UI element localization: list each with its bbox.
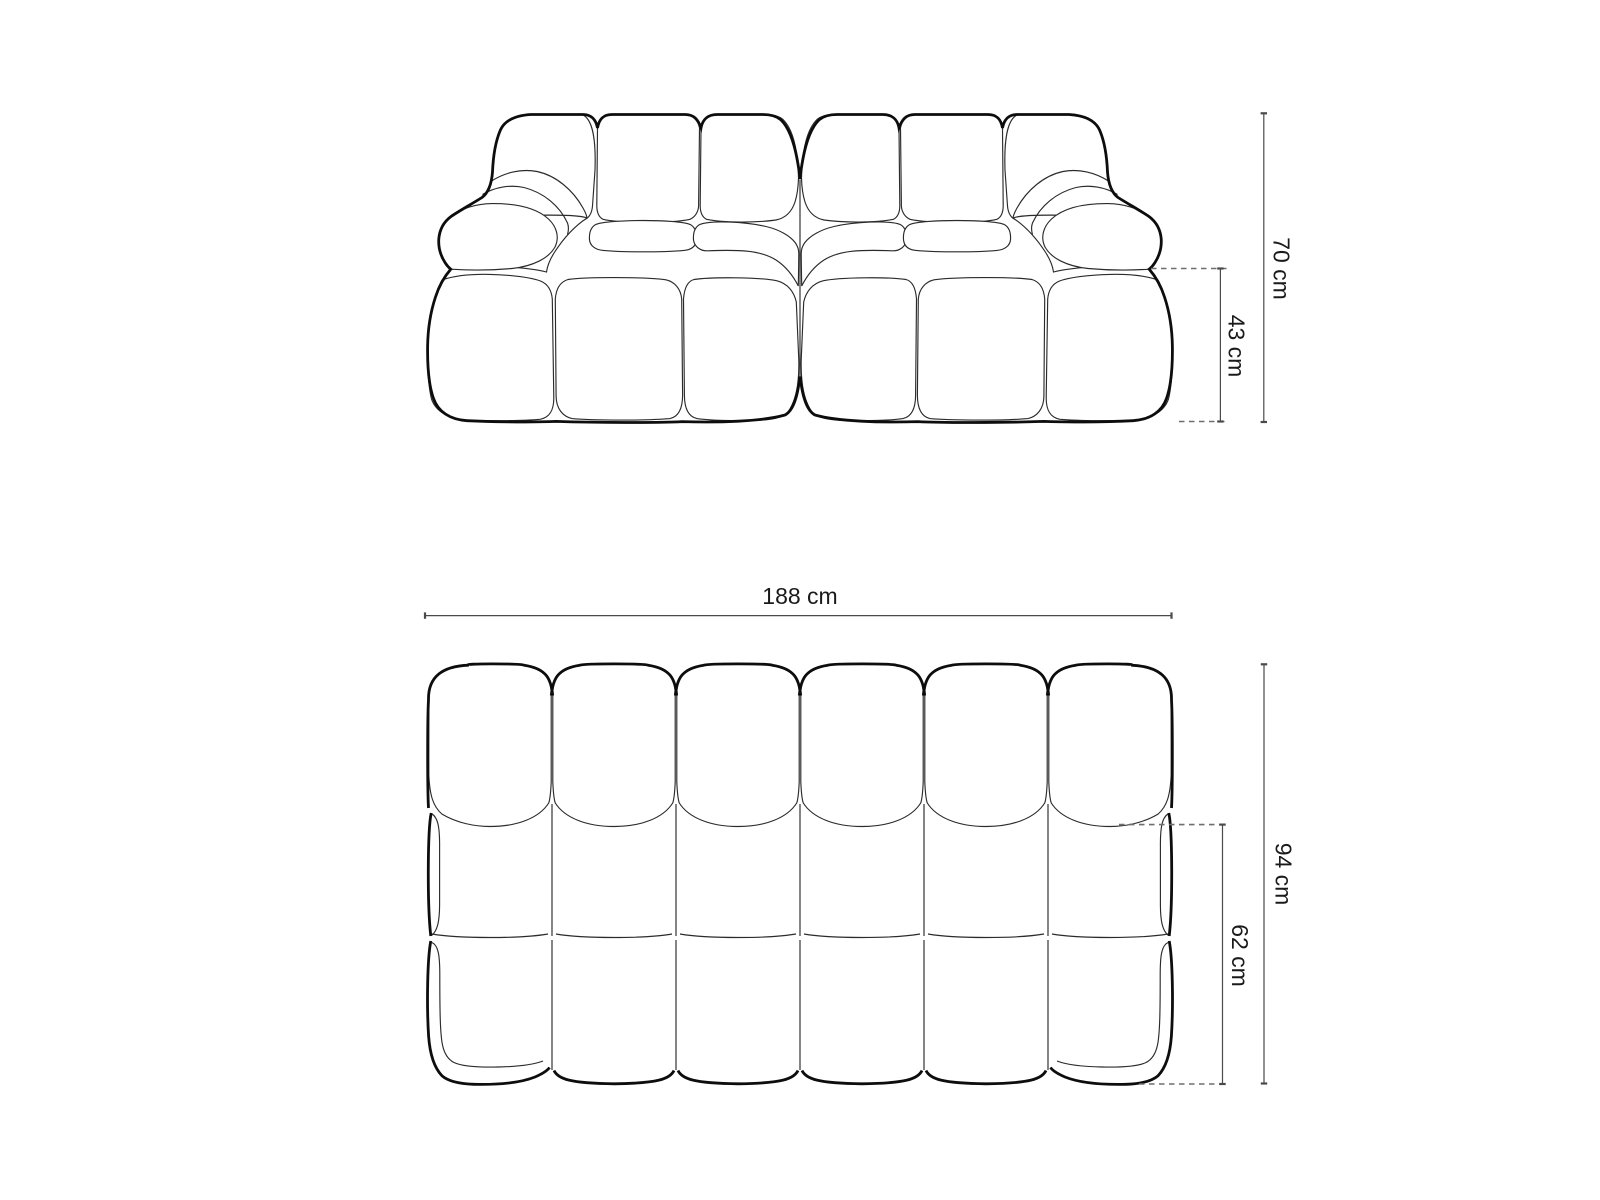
- svg-text:62 cm: 62 cm: [1227, 924, 1253, 987]
- svg-text:188 cm: 188 cm: [762, 583, 837, 609]
- svg-text:43 cm: 43 cm: [1224, 315, 1250, 378]
- svg-text:94 cm: 94 cm: [1271, 843, 1297, 906]
- svg-text:70 cm: 70 cm: [1269, 237, 1295, 300]
